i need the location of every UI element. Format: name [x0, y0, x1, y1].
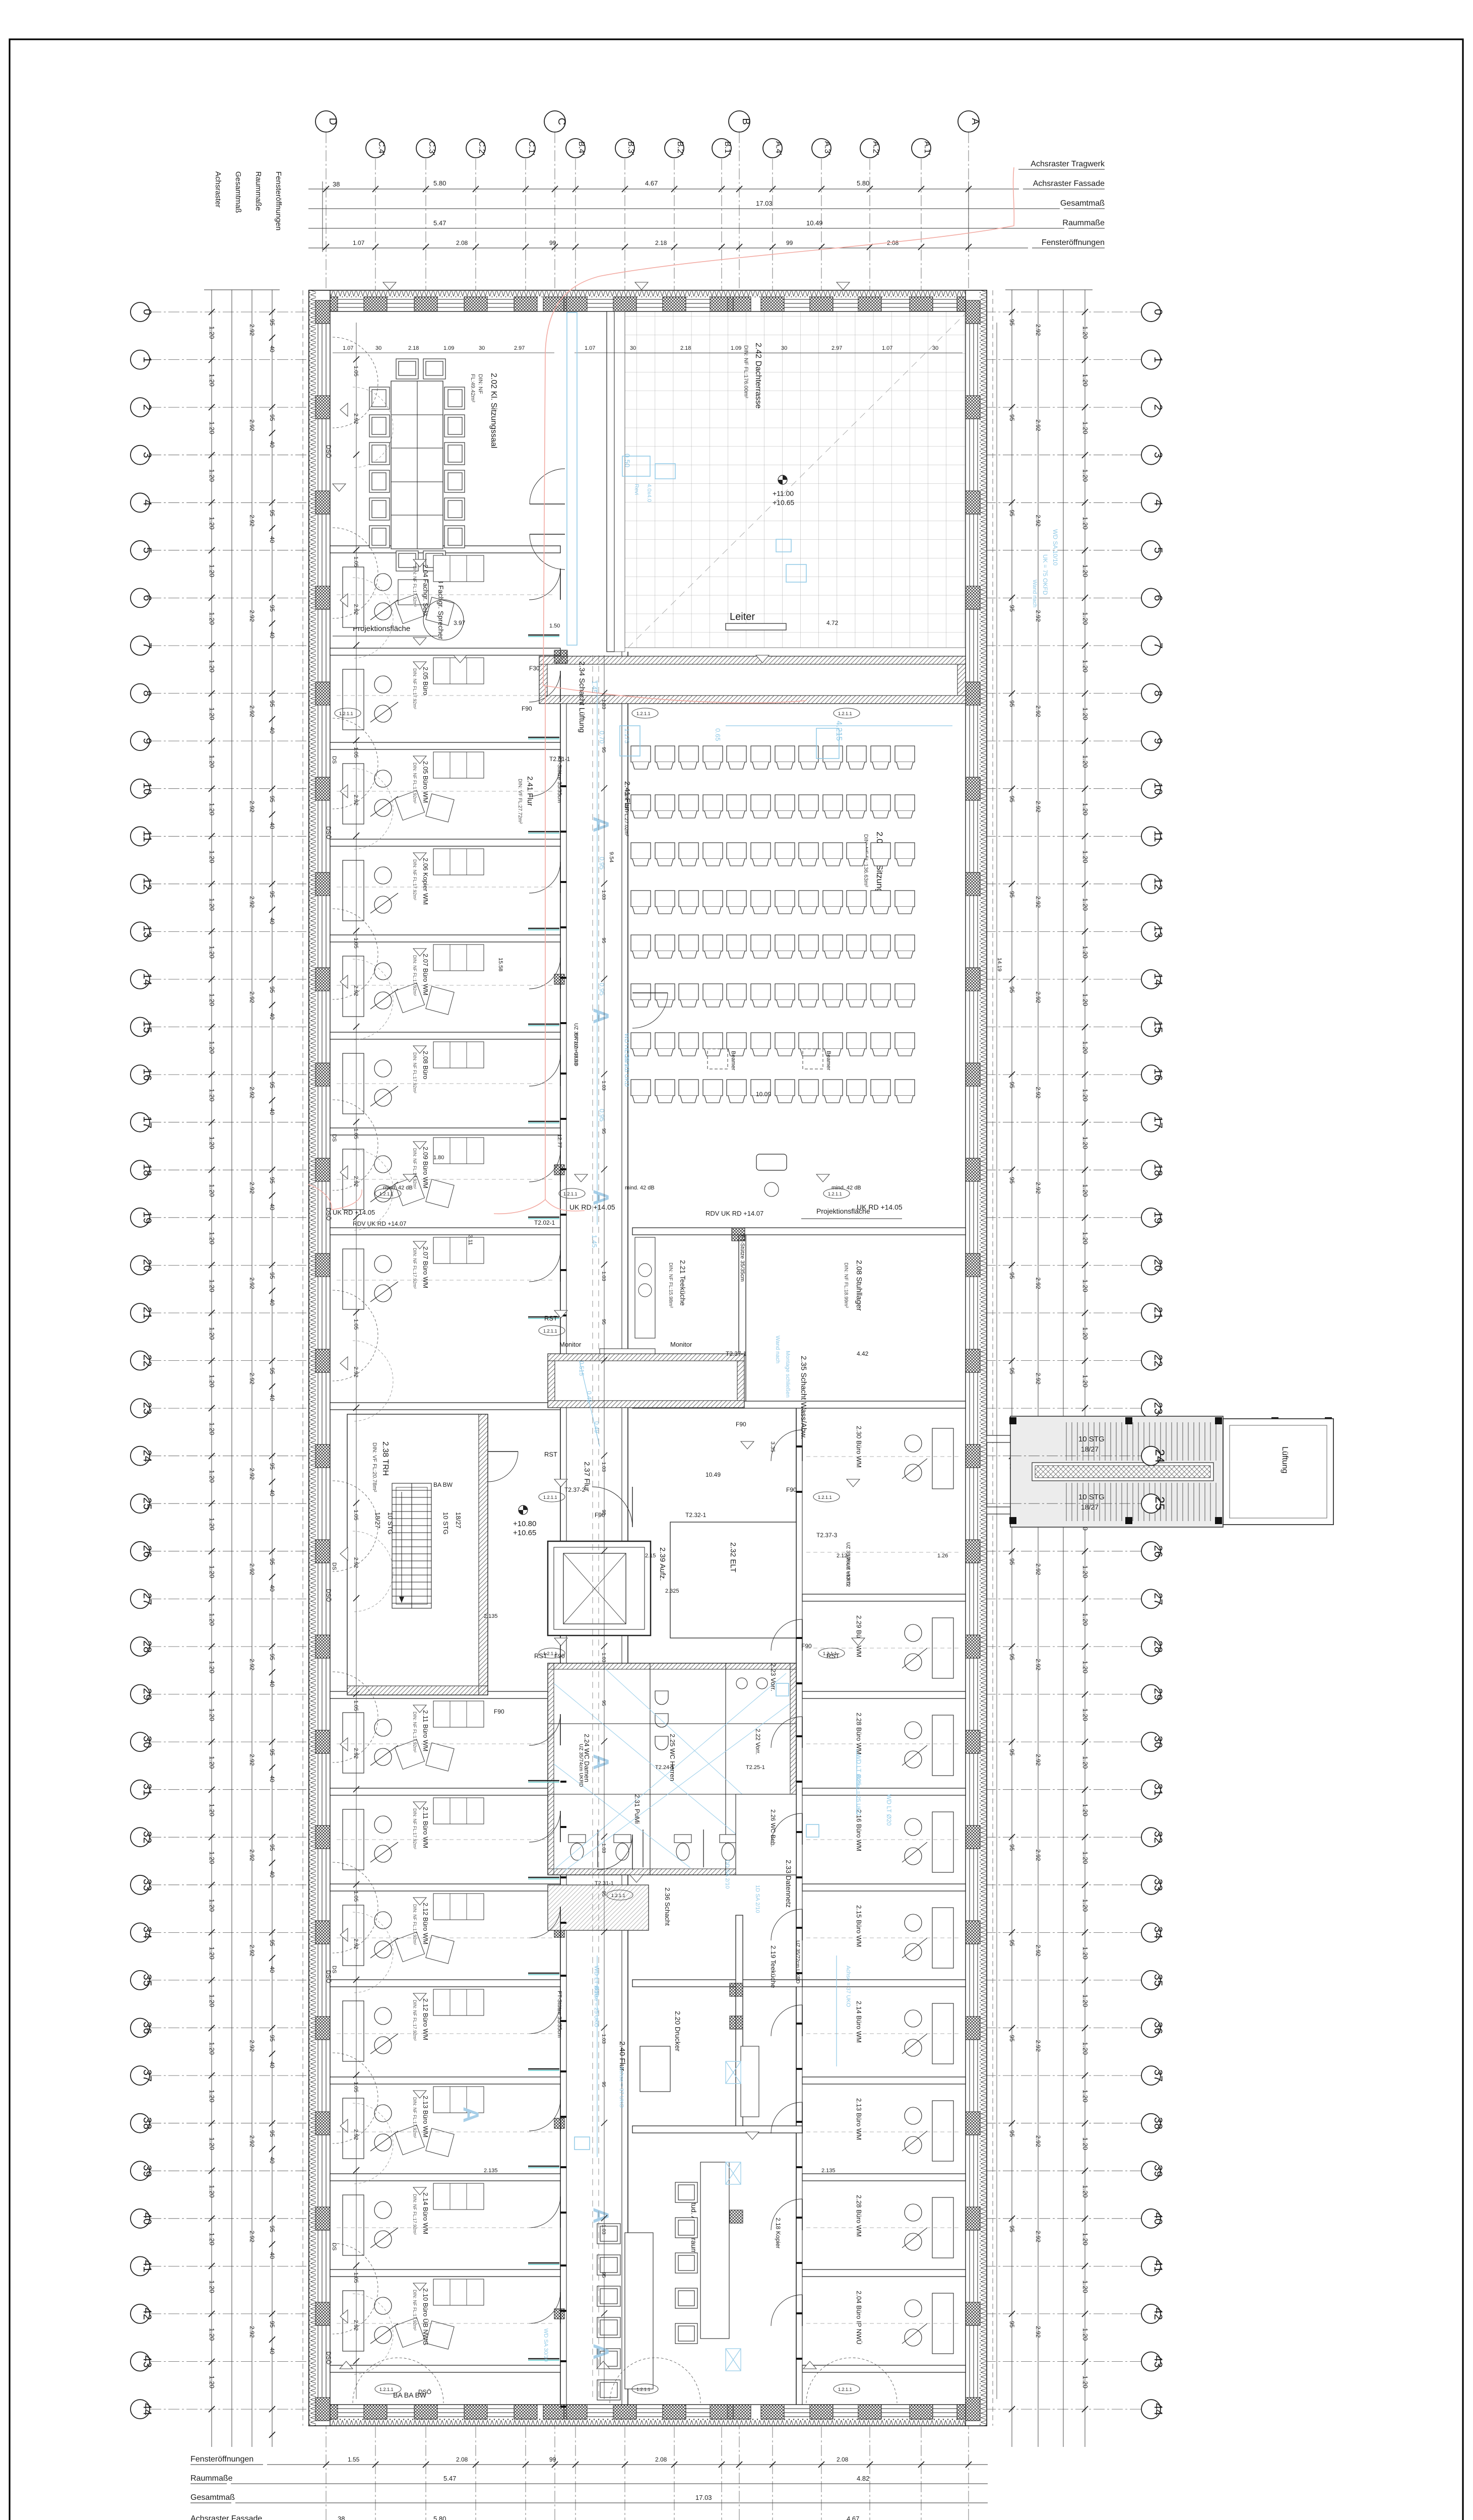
svg-text:2.92: 2.92 [1035, 2326, 1042, 2338]
svg-text:1.20: 1.20 [208, 1613, 216, 1625]
svg-text:1.20: 1.20 [208, 1375, 216, 1388]
svg-text:1.20: 1.20 [208, 755, 216, 768]
svg-text:23: 23 [141, 1402, 154, 1414]
svg-text:DIN: NF FL:17.92m²: DIN: NF FL:17.92m² [412, 668, 417, 709]
svg-text:2.92: 2.92 [1035, 1087, 1042, 1099]
svg-text:1.80: 1.80 [433, 1155, 444, 1161]
svg-text:1.20: 1.20 [1081, 1184, 1089, 1196]
svg-text:4.72: 4.72 [826, 619, 839, 626]
svg-text:95: 95 [1008, 891, 1015, 898]
svg-text:RDV UK RD +14.07: RDV UK RD +14.07 [706, 1210, 763, 1217]
svg-text:1.50: 1.50 [549, 623, 560, 629]
svg-text:1.2.1.1: 1.2.1.1 [823, 1651, 837, 1656]
svg-text:2.92: 2.92 [248, 896, 255, 908]
svg-text:1.20: 1.20 [1081, 1375, 1089, 1388]
svg-text:11: 11 [141, 831, 154, 842]
svg-text:1.05: 1.05 [353, 1128, 359, 1139]
svg-text:Achsraster Fassade: Achsraster Fassade [190, 2514, 262, 2520]
svg-text:2.92: 2.92 [248, 1468, 255, 1480]
svg-text:2.92: 2.92 [1035, 991, 1042, 1003]
svg-text:Gesamtmaß: Gesamtmaß [1060, 199, 1105, 208]
svg-text:1.20: 1.20 [208, 1851, 216, 1864]
svg-text:2.92: 2.92 [353, 1367, 359, 1377]
svg-text:A: A [589, 1189, 613, 1206]
svg-text:1.55: 1.55 [348, 2456, 360, 2463]
svg-text:2.05 Büro WM: 2.05 Büro WM [422, 761, 429, 803]
svg-text:1.20: 1.20 [208, 2042, 216, 2055]
svg-text:7: 7 [1152, 643, 1165, 649]
svg-text:DIN: VF FL:27.72m²: DIN: VF FL:27.72m² [517, 779, 523, 824]
svg-text:40: 40 [269, 918, 276, 925]
svg-text:1.20: 1.20 [208, 850, 216, 863]
svg-text:1.20: 1.20 [208, 612, 216, 624]
svg-text:FL:49.42m²: FL:49.42m² [470, 374, 476, 403]
svg-text:6: 6 [141, 595, 154, 601]
svg-text:2.15: 2.15 [645, 1553, 656, 1559]
svg-text:1.26: 1.26 [937, 1553, 948, 1559]
svg-text:2.92: 2.92 [353, 1557, 359, 1568]
svg-text:Beamer: Beamer [730, 1051, 736, 1070]
svg-text:1.20: 1.20 [1081, 326, 1089, 339]
svg-text:1.20: 1.20 [208, 1184, 216, 1196]
svg-text:1.03: 1.03 [601, 2225, 606, 2235]
svg-text:1.2.1.1: 1.2.1.1 [636, 2387, 651, 2392]
svg-text:F90: F90 [494, 1708, 504, 1715]
svg-text:2.325: 2.325 [665, 1588, 679, 1594]
svg-text:95: 95 [269, 986, 276, 993]
svg-text:2.92: 2.92 [1035, 1182, 1042, 1194]
svg-text:DIN: NF FL:176.00m²: DIN: NF FL:176.00m² [743, 345, 749, 398]
svg-text:Lüftung: Lüftung [1280, 1446, 1289, 1473]
svg-text:2.08: 2.08 [837, 2456, 849, 2463]
svg-text:2.92: 2.92 [1035, 2040, 1042, 2052]
svg-text:1.03: 1.03 [601, 1462, 606, 1472]
svg-text:DSÖ: DSÖ [325, 1970, 332, 1983]
svg-text:95: 95 [269, 414, 276, 421]
svg-text:95: 95 [1008, 1082, 1015, 1089]
svg-text:F90: F90 [786, 1486, 797, 1493]
svg-text:21: 21 [1152, 1307, 1165, 1319]
svg-text:2.92: 2.92 [1035, 419, 1042, 431]
svg-text:2.38 TRH: 2.38 TRH [381, 1441, 390, 1476]
svg-text:B.1’: B.1’ [723, 141, 732, 155]
svg-text:Achse = 37 UKO: Achse = 37 UKO [618, 2066, 624, 2108]
svg-text:95: 95 [601, 1128, 606, 1135]
svg-text:30: 30 [932, 345, 938, 351]
svg-text:95: 95 [269, 1939, 276, 1946]
svg-text:1.03: 1.03 [601, 1081, 606, 1091]
svg-text:FT-Stütze 35/35cm: FT-Stütze 35/35cm [556, 756, 562, 803]
svg-text:2.92: 2.92 [248, 419, 255, 431]
svg-text:2.18: 2.18 [408, 345, 419, 351]
svg-text:2.22 Vorr.: 2.22 Vorr. [754, 1729, 761, 1754]
svg-text:2.92: 2.92 [248, 706, 255, 718]
svg-text:2.11 Büro WM: 2.11 Büro WM [422, 1807, 429, 1848]
svg-text:1.05: 1.05 [353, 366, 359, 376]
svg-text:1.20: 1.20 [208, 1041, 216, 1054]
svg-text:1.20: 1.20 [1081, 803, 1089, 815]
svg-text:DIN: NF FL:17.92m²: DIN: NF FL:17.92m² [412, 1904, 417, 1945]
svg-text:4.67: 4.67 [645, 179, 658, 187]
svg-text:2.92: 2.92 [1035, 1563, 1042, 1576]
svg-text:95: 95 [269, 605, 276, 612]
svg-text:95: 95 [269, 1272, 276, 1279]
svg-text:95: 95 [1008, 1368, 1015, 1375]
svg-text:5: 5 [141, 547, 154, 553]
svg-text:32: 32 [141, 1831, 154, 1843]
svg-text:95: 95 [269, 1368, 276, 1375]
svg-text:1.20: 1.20 [1081, 1946, 1089, 1959]
svg-text:42: 42 [1152, 2308, 1165, 2320]
svg-text:T2.37-1: T2.37-1 [726, 1350, 747, 1357]
svg-text:19: 19 [1152, 1212, 1165, 1224]
svg-text:1.20: 1.20 [1081, 1756, 1089, 1769]
svg-text:18/27: 18/27 [1081, 1445, 1099, 1453]
svg-text:1.20: 1.20 [1081, 2042, 1089, 2055]
svg-text:T2.37-3: T2.37-3 [816, 1532, 838, 1539]
svg-text:14: 14 [1152, 973, 1165, 985]
svg-text:95: 95 [269, 1082, 276, 1089]
svg-text:Wand nach: Wand nach [775, 1336, 781, 1363]
svg-text:95: 95 [1008, 2321, 1015, 2328]
svg-text:4.42: 4.42 [857, 1350, 869, 1357]
svg-text:1.20: 1.20 [208, 2233, 216, 2245]
svg-text:14.19: 14.19 [996, 958, 1002, 972]
svg-text:F90: F90 [522, 705, 532, 712]
svg-text:F30: F30 [529, 665, 540, 672]
svg-text:0.95: 0.95 [598, 857, 606, 869]
svg-text:2.08: 2.08 [456, 239, 468, 246]
svg-text:C: C [556, 118, 567, 125]
svg-text:DS: DS [331, 1966, 337, 1973]
svg-text:12: 12 [141, 878, 154, 890]
svg-text:39: 39 [1152, 2165, 1165, 2177]
svg-text:OK = 5 UKD: OK = 5 UKD [623, 1053, 630, 1087]
svg-text:95: 95 [269, 2226, 276, 2233]
svg-text:2.92: 2.92 [248, 2135, 255, 2148]
svg-text:1.20: 1.20 [208, 2137, 216, 2150]
svg-text:1.20: 1.20 [1081, 1661, 1089, 1673]
svg-text:Fensteröffnungen: Fensteröffnungen [1042, 238, 1105, 247]
svg-text:2.92: 2.92 [353, 1938, 359, 1949]
svg-text:DSÖ: DSÖ [325, 2352, 332, 2365]
svg-text:Montage schließen: Montage schließen [785, 1351, 791, 1398]
svg-text:2.92: 2.92 [353, 985, 359, 996]
svg-text:7: 7 [141, 643, 154, 649]
svg-text:UZ 35/72cm UKRD: UZ 35/72cm UKRD [573, 1023, 579, 1066]
svg-text:95: 95 [269, 1654, 276, 1661]
svg-text:99: 99 [549, 239, 556, 246]
svg-text:16: 16 [141, 1068, 154, 1081]
svg-text:RST: RST [544, 1314, 557, 1322]
svg-text:13: 13 [141, 925, 154, 937]
svg-text:2.28 Büro WM: 2.28 Büro WM [855, 1713, 863, 1754]
svg-text:2.92: 2.92 [353, 795, 359, 805]
svg-text:18: 18 [141, 1164, 154, 1176]
svg-text:13: 13 [1152, 925, 1165, 937]
svg-text:41: 41 [141, 2260, 154, 2272]
svg-text:1.20: 1.20 [1081, 1232, 1089, 1244]
svg-text:10 STG: 10 STG [1078, 1493, 1105, 1501]
svg-text:A: A [589, 2344, 613, 2360]
svg-text:1.03: 1.03 [601, 1843, 606, 1853]
svg-text:2.92: 2.92 [1035, 1659, 1042, 1671]
svg-text:DS: DS [331, 1134, 337, 1142]
svg-text:1.05: 1.05 [353, 747, 359, 758]
svg-text:1.20: 1.20 [208, 2376, 216, 2388]
svg-text:1.20: 1.20 [1081, 946, 1089, 958]
svg-text:2.92: 2.92 [1035, 801, 1042, 813]
svg-text:15: 15 [1152, 1021, 1165, 1033]
svg-text:DSÖ: DSÖ [325, 1589, 332, 1602]
svg-text:2.92: 2.92 [248, 2040, 255, 2052]
svg-text:1.05: 1.05 [353, 1319, 359, 1330]
svg-text:+11.00: +11.00 [773, 489, 794, 497]
svg-text:1.20: 1.20 [208, 1089, 216, 1101]
svg-text:2.04 Büro IP NWÜ: 2.04 Büro IP NWÜ [855, 2291, 863, 2345]
svg-text:DIN: NF FL:17.92m²: DIN: NF FL:17.92m² [412, 566, 417, 607]
svg-text:15.58: 15.58 [497, 958, 503, 972]
svg-text:41: 41 [1152, 2260, 1165, 2272]
svg-text:2.14 Büro WM: 2.14 Büro WM [855, 2001, 863, 2043]
svg-text:2.12 Büro WM: 2.12 Büro WM [422, 1903, 429, 1944]
svg-text:Achsraster Tragwerk: Achsraster Tragwerk [1031, 160, 1105, 168]
svg-text:BA BW: BA BW [433, 1481, 453, 1488]
svg-text:2.08: 2.08 [456, 2456, 468, 2463]
svg-text:2.10 Büro ÜB NWG: 2.10 Büro ÜB NWG [422, 2288, 429, 2345]
svg-text:20: 20 [1152, 1259, 1165, 1271]
svg-text:35: 35 [141, 1974, 154, 1986]
svg-text:1: 1 [1152, 356, 1165, 362]
svg-text:21: 21 [141, 1307, 154, 1319]
svg-text:A.1’: A.1’ [923, 141, 931, 155]
svg-text:1.20: 1.20 [208, 421, 216, 434]
svg-text:F90: F90 [801, 1643, 812, 1650]
svg-text:95: 95 [1008, 1749, 1015, 1756]
svg-text:Raummaße: Raummaße [190, 2474, 233, 2483]
svg-text:2.135: 2.135 [821, 2168, 836, 2174]
svg-text:2.92: 2.92 [1035, 2231, 1042, 2243]
svg-text:38: 38 [333, 180, 340, 188]
svg-text:38: 38 [1152, 2117, 1165, 2129]
svg-text:10.49: 10.49 [706, 1471, 721, 1478]
svg-text:10: 10 [141, 782, 154, 794]
svg-text:1.09: 1.09 [443, 345, 454, 351]
svg-text:Achse = 25 UKO: Achse = 25 UKO [593, 1986, 599, 2028]
svg-text:2.92: 2.92 [353, 2129, 359, 2140]
svg-text:2.29 Büro WM: 2.29 Büro WM [855, 1615, 863, 1657]
svg-text:2.92: 2.92 [353, 1176, 359, 1186]
svg-text:Gesamtmaß: Gesamtmaß [190, 2493, 235, 2502]
svg-text:1.20: 1.20 [1081, 1089, 1089, 1101]
svg-text:1.20: 1.20 [1081, 1994, 1089, 2007]
svg-text:95: 95 [1008, 319, 1015, 326]
svg-text:DSÖ: DSÖ [325, 445, 332, 458]
svg-text:34: 34 [141, 1926, 154, 1938]
svg-text:5: 5 [1152, 547, 1165, 553]
svg-text:DIN: NF FL:17.92m²: DIN: NF FL:17.92m² [412, 1712, 417, 1752]
svg-text:2.19 Teeküche: 2.19 Teeküche [770, 1945, 777, 1988]
svg-text:2.135: 2.135 [484, 2168, 498, 2174]
svg-text:6: 6 [1152, 595, 1165, 601]
svg-text:2.92: 2.92 [248, 1373, 255, 1385]
svg-text:2.31 PuMi: 2.31 PuMi [633, 1794, 641, 1824]
svg-text:2.34 Schacht Lüftung: 2.34 Schacht Lüftung [578, 661, 586, 733]
svg-text:DIN: VF FL:20.78m²: DIN: VF FL:20.78m² [371, 1442, 377, 1492]
svg-text:2: 2 [141, 404, 154, 410]
svg-text:1.07: 1.07 [585, 345, 595, 351]
svg-text:40: 40 [269, 441, 276, 448]
svg-text:2.92: 2.92 [248, 1659, 255, 1671]
svg-text:Achsraster Fassade: Achsraster Fassade [1033, 179, 1105, 188]
svg-text:DIN: NF FL:17.92m²: DIN: NF FL:17.92m² [412, 955, 417, 996]
svg-text:1.20: 1.20 [208, 2090, 216, 2102]
svg-text:1.20: 1.20 [1081, 2137, 1089, 2150]
svg-text:5.80: 5.80 [857, 179, 869, 187]
svg-text:2.21 Teeküche: 2.21 Teeküche [679, 1260, 687, 1306]
svg-text:DIN: NF FL:17.92m²: DIN: NF FL:17.92m² [412, 1052, 417, 1093]
svg-text:3.35: 3.35 [770, 1441, 776, 1452]
svg-text:2.92: 2.92 [1035, 610, 1042, 622]
svg-text:A: A [589, 1754, 613, 1770]
svg-text:0: 0 [141, 309, 154, 315]
svg-text:5.47: 5.47 [443, 2475, 456, 2482]
svg-text:3: 3 [141, 452, 154, 458]
svg-text:95: 95 [1008, 605, 1015, 612]
svg-text:2.18 Kopier: 2.18 Kopier [775, 2218, 782, 2248]
svg-text:RDV UK RD +14.07: RDV UK RD +14.07 [353, 1220, 407, 1227]
svg-text:1.2.1.1: 1.2.1.1 [543, 1329, 557, 1334]
svg-text:1.05: 1.05 [353, 2082, 359, 2092]
svg-text:DIN: NF FL:17.92m²: DIN: NF FL:17.92m² [412, 763, 417, 803]
svg-text:UZ 35/74cm UKRD: UZ 35/74cm UKRD [578, 1744, 584, 1787]
svg-text:1.20: 1.20 [1081, 469, 1089, 482]
svg-text:2.92: 2.92 [248, 1754, 255, 1766]
svg-text:40: 40 [269, 1489, 276, 1496]
svg-text:17: 17 [1152, 1116, 1165, 1128]
svg-text:0.50: 0.50 [623, 454, 631, 467]
svg-text:25: 25 [141, 1497, 154, 1509]
svg-text:2.92: 2.92 [1035, 1277, 1042, 1289]
svg-text:2.92: 2.92 [1035, 515, 1042, 527]
svg-text:2.97: 2.97 [831, 345, 842, 351]
svg-text:95: 95 [601, 937, 606, 943]
svg-text:2.92: 2.92 [353, 413, 359, 424]
svg-text:44: 44 [1152, 2403, 1165, 2415]
svg-text:A.2’: A.2’ [871, 141, 880, 155]
svg-text:37: 37 [1152, 2069, 1165, 2082]
svg-text:1.03: 1.03 [601, 1653, 606, 1663]
svg-text:1.05: 1.05 [353, 556, 359, 567]
svg-text:95: 95 [1008, 1177, 1015, 1184]
svg-text:24: 24 [1152, 1449, 1167, 1463]
svg-text:40: 40 [269, 727, 276, 734]
svg-text:30: 30 [1152, 1736, 1165, 1748]
svg-text:2.92: 2.92 [1035, 2135, 1042, 2148]
svg-text:C.2’: C.2’ [477, 141, 486, 155]
svg-text:2.97: 2.97 [514, 345, 525, 351]
svg-text:Revi: Revi [633, 484, 639, 495]
svg-text:12: 12 [1152, 878, 1165, 890]
svg-text:1.20: 1.20 [208, 993, 216, 1006]
svg-text:1.07: 1.07 [343, 345, 353, 351]
svg-text:2.92: 2.92 [353, 1748, 359, 1758]
svg-text:2.92: 2.92 [248, 991, 255, 1003]
svg-text:36: 36 [1152, 2022, 1165, 2034]
svg-text:B.3’: B.3’ [626, 141, 635, 155]
svg-text:40: 40 [269, 2061, 276, 2068]
svg-text:18/27: 18/27 [1081, 1503, 1099, 1511]
svg-text:DS: DS [331, 756, 337, 764]
svg-text:T2.24-1: T2.24-1 [655, 1765, 674, 1771]
svg-text:40: 40 [269, 1966, 276, 1973]
svg-text:2.92: 2.92 [1035, 706, 1042, 718]
svg-text:95: 95 [269, 796, 276, 803]
svg-text:FT-Stütze 35/35cm: FT-Stütze 35/35cm [739, 1235, 745, 1282]
svg-text:1.2.1.1: 1.2.1.1 [818, 1495, 832, 1500]
svg-text:Wand nach: Wand nach [1032, 580, 1038, 607]
svg-text:1.20: 1.20 [208, 2280, 216, 2293]
svg-text:2.11 Büro WM: 2.11 Büro WM [422, 1710, 429, 1751]
svg-text:DSÖ: DSÖ [325, 826, 332, 839]
svg-text:2.16 Büro WM: 2.16 Büro WM [855, 1809, 863, 1851]
svg-text:0.65: 0.65 [714, 728, 722, 741]
svg-text:1.20: 1.20 [208, 1946, 216, 1959]
svg-text:DIN: NF FL:18.99m²: DIN: NF FL:18.99m² [843, 1263, 849, 1308]
svg-text:44: 44 [141, 2403, 154, 2415]
svg-text:Achsraster: Achsraster [214, 171, 222, 208]
svg-text:1.05: 1.05 [353, 937, 359, 948]
svg-text:32: 32 [1152, 1831, 1165, 1843]
svg-text:1.20: 1.20 [208, 1422, 216, 1435]
svg-text:1.20: 1.20 [208, 1804, 216, 1816]
svg-text:1.175: 1.175 [623, 728, 630, 743]
svg-text:95: 95 [601, 1319, 606, 1325]
svg-text:1.20: 1.20 [208, 1137, 216, 1149]
svg-text:10.09: 10.09 [756, 1091, 771, 1098]
svg-text:1.20: 1.20 [208, 1709, 216, 1721]
svg-text:1.2.1.1: 1.2.1.1 [339, 711, 353, 716]
svg-text:40: 40 [269, 1013, 276, 1020]
svg-text:Gesamtmaß: Gesamtmaß [234, 171, 242, 213]
svg-text:2.02 Kl. Sitzungssaal: 2.02 Kl. Sitzungssaal [489, 373, 498, 448]
svg-text:95: 95 [601, 2082, 606, 2088]
svg-text:23: 23 [1152, 1402, 1165, 1414]
svg-text:40: 40 [269, 1680, 276, 1687]
svg-text:2.92: 2.92 [353, 2320, 359, 2330]
svg-text:40: 40 [269, 2348, 276, 2355]
svg-text:38: 38 [141, 2117, 154, 2129]
svg-text:1.20: 1.20 [208, 1565, 216, 1578]
svg-text:2.135: 2.135 [484, 1613, 498, 1619]
svg-text:A.4’: A.4’ [774, 141, 783, 155]
svg-text:42: 42 [141, 2308, 154, 2320]
svg-text:Raummaße: Raummaße [1062, 219, 1105, 227]
svg-text:2.42 Dachterrasse: 2.42 Dachterrasse [754, 343, 762, 409]
svg-text:5.80: 5.80 [433, 179, 446, 187]
svg-text:Monitor: Monitor [559, 1341, 582, 1348]
svg-text:WD LT Ø20: WD LT Ø20 [885, 1794, 892, 1826]
svg-text:1.20: 1.20 [208, 1279, 216, 1292]
svg-text:5.47: 5.47 [433, 219, 446, 227]
svg-text:95: 95 [269, 891, 276, 898]
svg-text:95: 95 [601, 2272, 606, 2278]
svg-text:1.05: 1.05 [353, 1700, 359, 1711]
svg-text:10 STG: 10 STG [387, 1512, 394, 1535]
svg-text:5.80: 5.80 [433, 2515, 446, 2520]
svg-text:2.18: 2.18 [680, 345, 691, 351]
svg-text:40: 40 [269, 2157, 276, 2164]
